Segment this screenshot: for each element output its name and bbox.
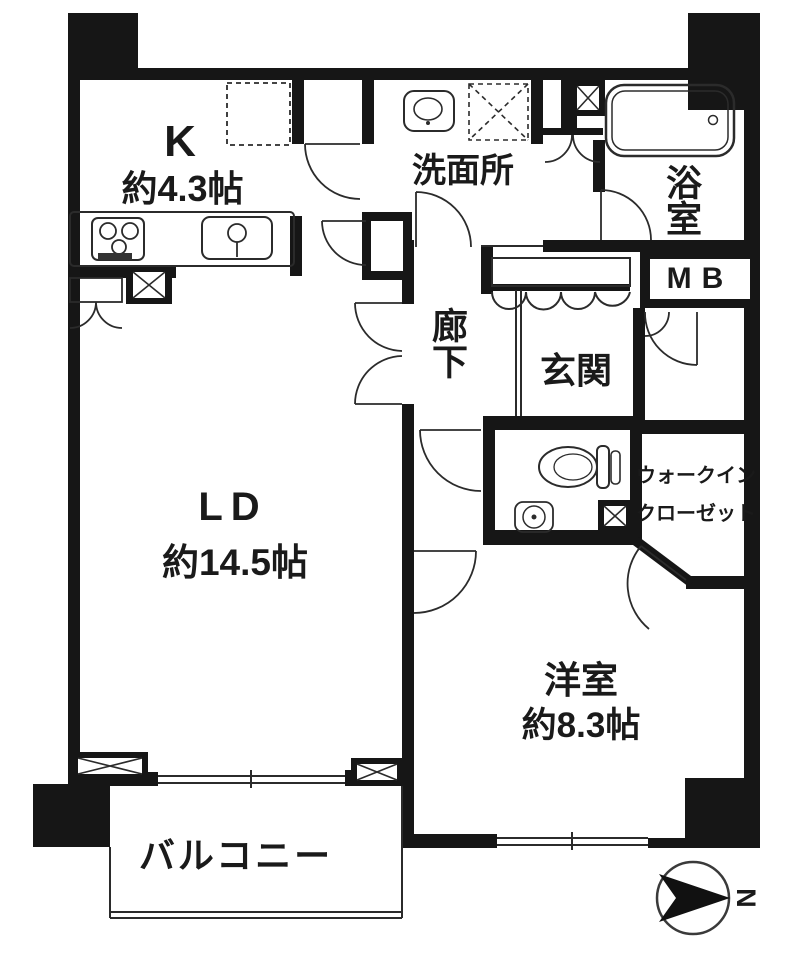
washer-space [469, 84, 528, 140]
pillar-bottom-right [685, 778, 760, 848]
toilet-sink-icon [515, 502, 553, 532]
label-living-dining-size: 約14.5帖 [105, 536, 365, 582]
door-vestibule-ld [322, 221, 366, 265]
kitchen-counter [70, 212, 294, 266]
wall-western-bottom-stub [648, 838, 688, 848]
wall-entrance-bottom [483, 416, 645, 430]
washroom-sink-icon [404, 91, 454, 131]
label-meter-box: MB [648, 259, 752, 299]
floor-plan: K 約4.3帖 洗面所 浴室 MB 廊下 玄関 LD 約14.5帖 洋室 約8.… [0, 0, 800, 964]
label-balcony: バルコニー [124, 830, 348, 876]
wall-closet-diagonal [636, 541, 692, 583]
north-arrow-icon [659, 874, 730, 922]
wall-closet-bottom [686, 576, 760, 589]
label-corridor: 廊下 [425, 298, 469, 388]
pipe-space-mid-inset [371, 221, 403, 271]
wall-kitchen-right-upper [292, 80, 304, 144]
door-ld-double-upper [355, 303, 402, 351]
label-washroom: 洗面所 [393, 145, 533, 189]
wall-washroom-right [531, 80, 543, 144]
wall-toilet-bottom [483, 530, 642, 545]
door-kitchen-storage [305, 144, 360, 199]
door-ld-double-lower [355, 356, 402, 404]
wall-top [78, 68, 690, 80]
door-front-entry [645, 312, 697, 365]
kitchen-sink-icon [202, 217, 272, 259]
door-toilet [420, 430, 481, 491]
label-western-room-size: 約8.3帖 [472, 699, 690, 745]
pillar-bottom-left [33, 784, 110, 847]
wall-porch-bottom [633, 420, 760, 434]
shoe-cabinet [492, 258, 630, 286]
door-washroom-closet-wings [545, 135, 600, 162]
label-kitchen-size: 約4.3帖 [80, 163, 285, 209]
wall-western-bottom-left [402, 834, 497, 848]
wall-toilet-left [483, 430, 495, 544]
wall-washroom-left [362, 80, 374, 144]
shoe-cabinet-door-arcs [492, 292, 630, 310]
label-compass-north: N [729, 883, 763, 913]
label-walk-in-closet-line2: クローゼット [638, 498, 754, 524]
wall-closet-header [543, 128, 603, 135]
door-walk-in-closet [628, 546, 686, 629]
gas-stove-icon [92, 218, 144, 260]
door-bathroom [601, 190, 651, 240]
wall-corridor-left-stub [402, 240, 414, 304]
label-bathroom: 浴室 [658, 152, 704, 247]
wall-left [68, 68, 80, 784]
label-living-dining: LD [181, 482, 285, 532]
wall-kitchen-right-lower [290, 216, 302, 276]
compass-icon [657, 862, 730, 934]
wall-bath-left [593, 140, 605, 192]
refrigerator-space [227, 83, 290, 145]
label-western-room: 洋室 [519, 654, 643, 700]
pillar-top-left [68, 13, 138, 75]
label-entrance: 玄関 [514, 346, 638, 390]
door-washroom [416, 192, 471, 247]
door-western-room [414, 551, 476, 613]
label-walk-in-closet-line1: ウォークイン [638, 460, 754, 486]
toilet-icon [539, 446, 620, 488]
